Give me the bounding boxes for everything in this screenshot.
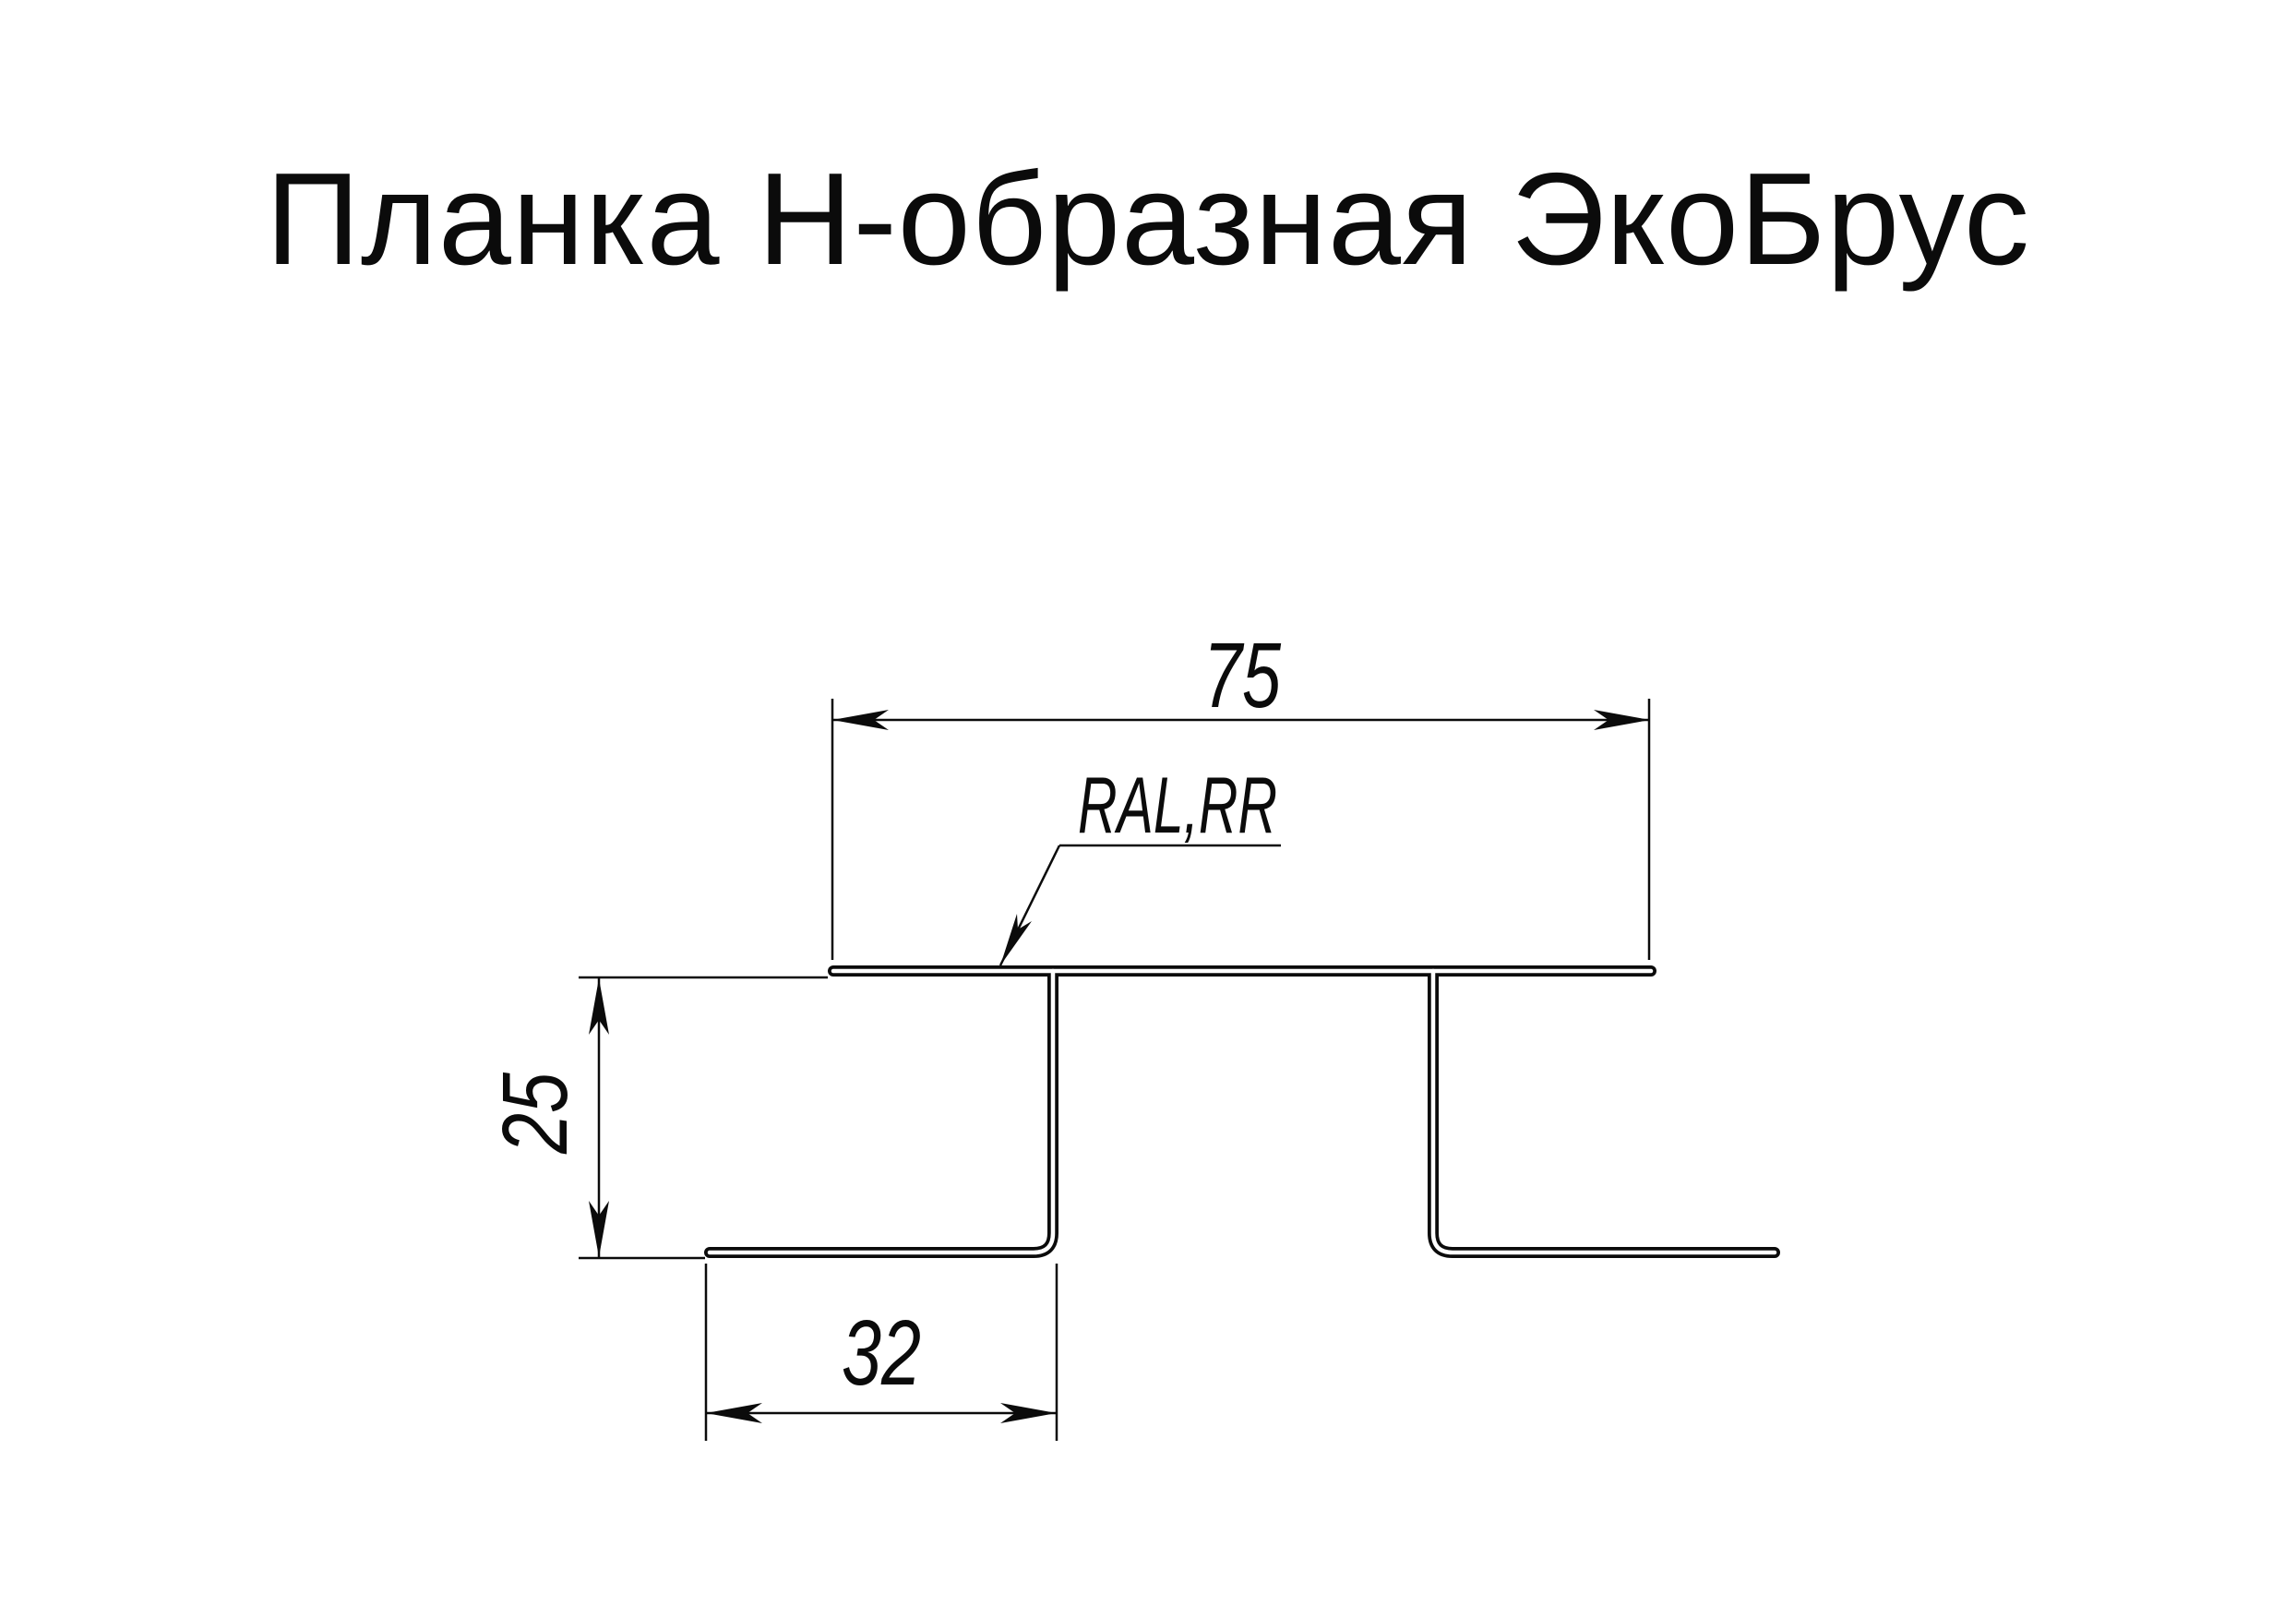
h-profile-technical-drawing: Планка Н-образная ЭкоБрус 75 — [0, 0, 2296, 1606]
dimension-value-32: 32 — [842, 1301, 921, 1405]
dimension-value-25: 25 — [484, 1073, 587, 1155]
drawing-page: Планка Н-образная ЭкоБрус 75 — [0, 0, 2296, 1606]
page-title: Планка Н-образная ЭкоБрус — [266, 146, 2030, 293]
coating-label: RAL,RR — [1078, 761, 1277, 850]
dimension-value-75: 75 — [1203, 624, 1281, 727]
